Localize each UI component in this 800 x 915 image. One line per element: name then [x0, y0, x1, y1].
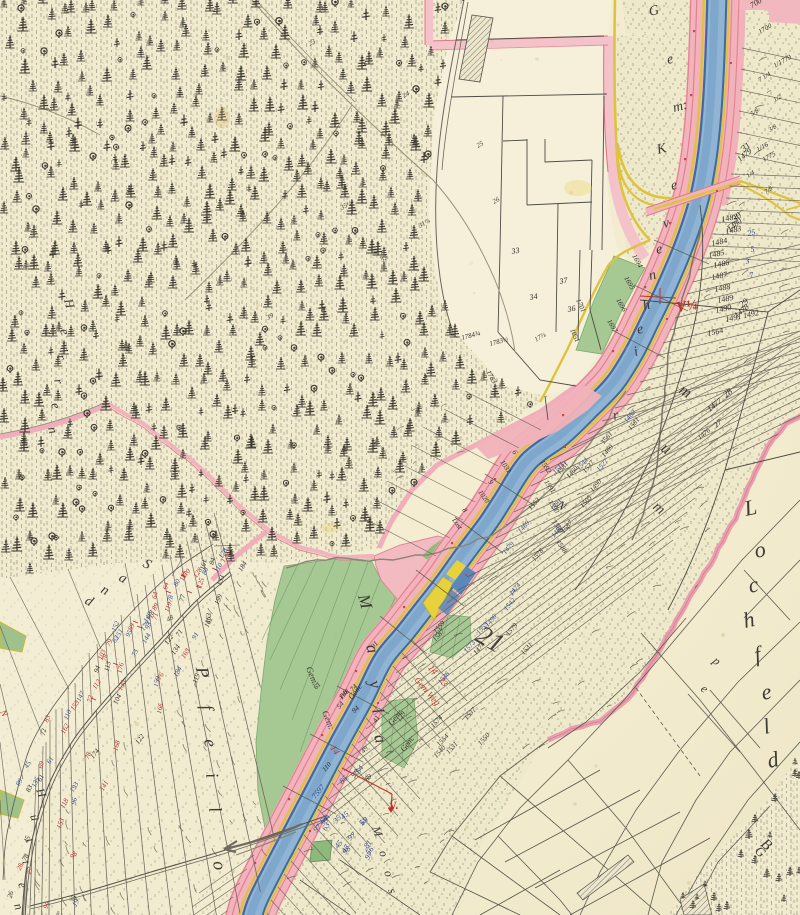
- svg-text:36: 36: [566, 304, 576, 314]
- svg-text:34: 34: [528, 292, 538, 302]
- svg-text:33: 33: [510, 246, 520, 256]
- svg-text:V¼: V¼: [675, 297, 698, 316]
